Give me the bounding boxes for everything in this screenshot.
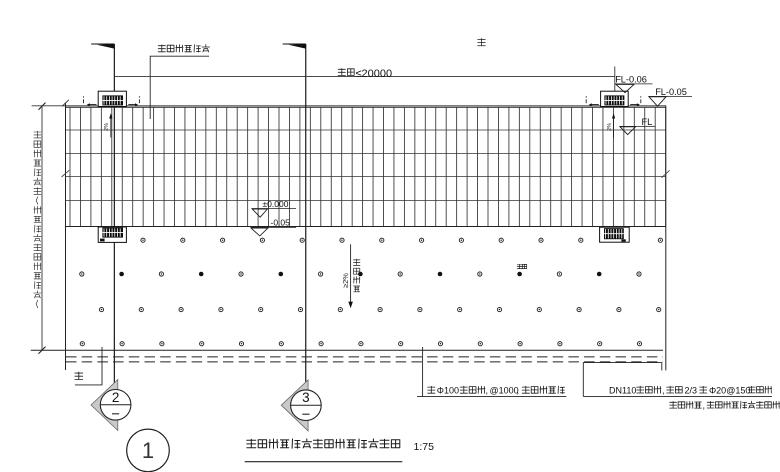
svg-text:,: , (486, 386, 489, 396)
svg-text:,: , (662, 386, 665, 396)
svg-text:-0.05: -0.05 (271, 218, 291, 228)
svg-text:±0.000: ±0.000 (263, 199, 289, 209)
svg-text:3: 3 (302, 390, 310, 405)
svg-text:@1000: @1000 (490, 386, 519, 396)
svg-text:FL-0.06: FL-0.06 (615, 74, 647, 84)
svg-text:,: , (517, 386, 520, 396)
svg-text:≥2%: ≥2% (341, 273, 350, 288)
svg-text:FL: FL (642, 117, 653, 127)
svg-text:2/3: 2/3 (685, 386, 698, 396)
svg-text:1: 1 (142, 438, 154, 463)
svg-text:DN110: DN110 (609, 386, 636, 396)
svg-text:2: 2 (112, 390, 120, 405)
svg-text:,: , (703, 401, 706, 411)
svg-text:1:75: 1:75 (414, 441, 435, 453)
svg-text:FL-0.05: FL-0.05 (655, 87, 687, 97)
svg-text:≤20000: ≤20000 (356, 68, 393, 80)
svg-text:Φ20@150: Φ20@150 (709, 386, 750, 396)
svg-text:Φ100: Φ100 (437, 386, 459, 396)
svg-text:2%: 2% (104, 123, 110, 131)
svg-text:2%: 2% (607, 123, 613, 131)
